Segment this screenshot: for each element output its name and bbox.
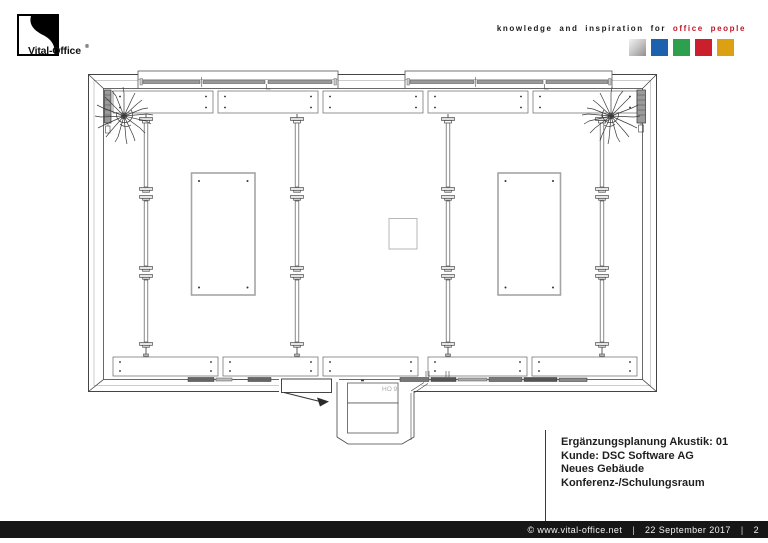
project-title: Ergänzungsplanung Akustik: 01	[561, 436, 728, 450]
ceiling-strip-left	[138, 71, 338, 89]
wall-panels-bottom	[113, 357, 637, 376]
footer-date: 22 September 2017	[645, 525, 731, 535]
footer-separator: |	[741, 525, 744, 535]
footer-bar: © www.vital-office.net | 22 September 20…	[0, 521, 768, 538]
wall-panels-top	[113, 91, 637, 113]
footer-copyright-link[interactable]: © www.vital-office.net	[527, 525, 622, 535]
vestibule: HO 9	[337, 380, 428, 445]
partition-track-left	[188, 378, 271, 382]
title-block-divider	[545, 430, 546, 521]
entrance-door	[279, 377, 339, 407]
project-building: Neues Gebäude	[561, 463, 728, 477]
center-column	[389, 219, 417, 250]
ceiling-strip-right	[405, 71, 612, 89]
room-walls	[89, 75, 657, 392]
table-left	[192, 173, 256, 295]
table-right	[498, 173, 561, 295]
footer-separator: |	[632, 525, 635, 535]
room-label: HO 9	[382, 386, 398, 393]
title-block: Ergänzungsplanung Akustik: 01 Kunde: DSC…	[561, 436, 728, 490]
project-client: Kunde: DSC Software AG	[561, 450, 728, 464]
project-room: Konferenz-/Schulungsraum	[561, 477, 728, 491]
footer-page-number: 2	[754, 525, 759, 535]
door-swing-arrow	[317, 398, 329, 407]
